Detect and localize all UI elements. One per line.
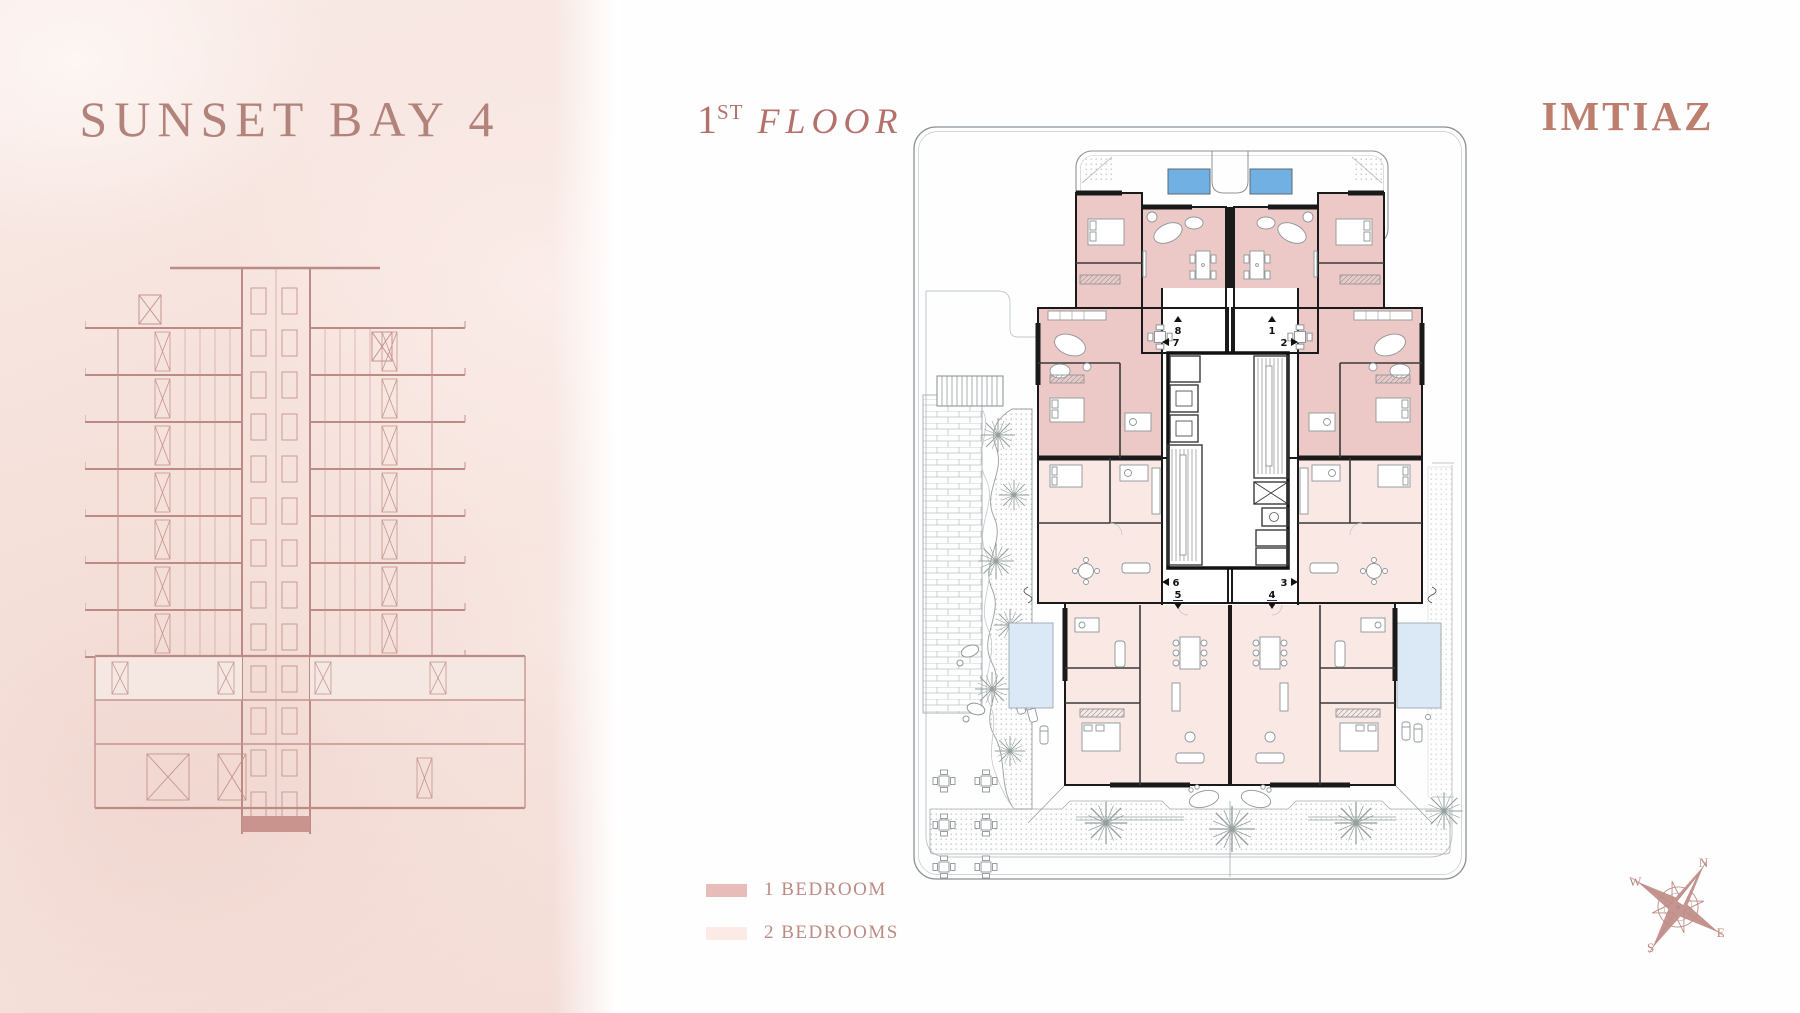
floor-number: 1 [697, 97, 717, 142]
unit-marker-5: 5 [1175, 590, 1182, 601]
compass-north: N [1699, 855, 1709, 870]
swimming-pool [1250, 169, 1292, 194]
brand-logo: IMTIAZ [1528, 92, 1728, 140]
palm-icon [995, 736, 1026, 767]
unit-marker-3: 3 [1281, 578, 1288, 589]
elevation-drawing [85, 256, 545, 858]
floor-word: FLOOR [758, 101, 904, 141]
floor-plan-drawing: 8 7 1 2 6 5 3 4 [910, 123, 1470, 883]
building-elevation [85, 256, 545, 858]
compass-rose-icon: N E S W [1616, 845, 1740, 969]
compass-west: W [1629, 874, 1642, 889]
swimming-pool [1168, 169, 1210, 194]
legend: 1 BEDROOM 2 BEDROOMS [706, 879, 899, 965]
outdoor-stair [937, 376, 1003, 406]
floor-suffix: ST [717, 100, 744, 124]
unit-marker-6: 6 [1173, 578, 1180, 589]
legend-item-2br: 2 BEDROOMS [706, 922, 899, 944]
side-pool [1397, 623, 1441, 708]
floor-plan: 8 7 1 2 6 5 3 4 [910, 123, 1470, 883]
one-bedroom-swatch [706, 884, 747, 897]
palm-icon [999, 480, 1030, 511]
legend-item-1br: 1 BEDROOM [706, 879, 899, 901]
unit-marker-4: 4 [1269, 590, 1276, 601]
outdoor-table [933, 770, 955, 792]
palm-icon [1209, 806, 1255, 852]
palm-icon [1085, 802, 1128, 845]
outdoor-table [975, 770, 997, 792]
compass-south: S [1647, 940, 1654, 955]
palm-icon [978, 543, 1014, 579]
palm-icon [981, 418, 1015, 452]
unit-marker-2: 2 [1281, 338, 1288, 349]
compass-east: E [1717, 925, 1725, 940]
unit-marker-7: 7 [1173, 338, 1180, 349]
brochure-page: SUNSET BAY 4 1STFLOOR IMTIAZ [0, 0, 1800, 1013]
two-bedroom-swatch [706, 927, 747, 940]
building-core [1168, 353, 1288, 568]
unit-marker-1: 1 [1269, 326, 1276, 337]
palm-icon [975, 672, 1009, 706]
panel-fade [552, 0, 622, 1013]
side-pool [1009, 623, 1053, 708]
project-title: SUNSET BAY 4 [0, 90, 580, 148]
palm-icon [1335, 802, 1378, 845]
floor-title: 1STFLOOR [697, 96, 904, 143]
two-bedroom-label: 2 BEDROOMS [764, 922, 899, 944]
unit-marker-8: 8 [1175, 326, 1182, 337]
one-bedroom-label: 1 BEDROOM [764, 879, 887, 901]
palm-icon [1425, 792, 1462, 829]
